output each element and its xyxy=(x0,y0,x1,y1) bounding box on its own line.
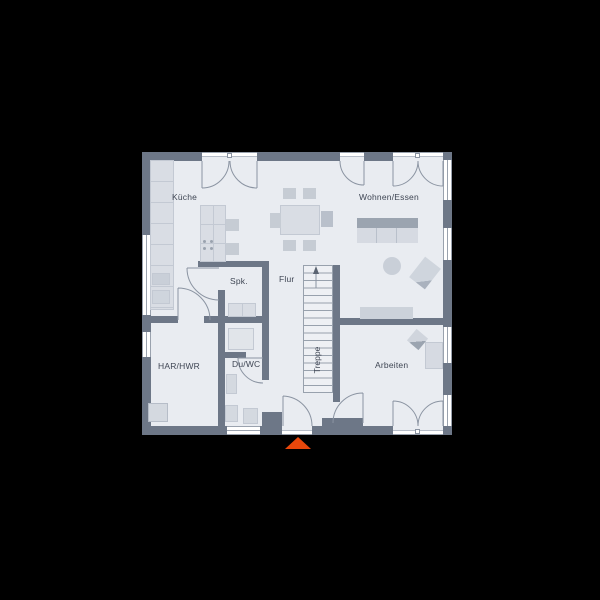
door-arc-living-single xyxy=(340,161,364,185)
room-label-har-hwr: HAR/HWR xyxy=(158,361,200,371)
room-label-treppe: Treppe xyxy=(312,340,324,380)
canvas: Küche Wohnen/Essen Spk. Flur Treppe HAR/… xyxy=(0,0,600,600)
stair-direction-arrow xyxy=(313,266,319,274)
door-arc-office-hall xyxy=(333,393,363,423)
door-arc-office-left xyxy=(393,401,418,426)
door-arc-har xyxy=(178,288,210,320)
door-arc-spk xyxy=(187,268,219,300)
floor-plan: Küche Wohnen/Essen Spk. Flur Treppe HAR/… xyxy=(142,152,452,435)
door-arc-terrace-left xyxy=(393,161,418,186)
room-label-arbeiten: Arbeiten xyxy=(375,360,408,370)
door-arc-kitchen-right xyxy=(230,161,257,188)
room-label-spk: Spk. xyxy=(230,276,248,286)
door-arc-office-right xyxy=(418,401,443,426)
room-label-wohnen-essen: Wohnen/Essen xyxy=(359,192,419,202)
room-label-du-wc: Du/WC xyxy=(232,359,260,369)
door-arc-kitchen-left xyxy=(202,161,229,188)
door-arc-terrace-right xyxy=(418,161,443,186)
entrance-marker xyxy=(285,437,311,449)
room-label-flur: Flur xyxy=(279,274,294,284)
room-label-kueche: Küche xyxy=(172,192,197,202)
door-arc-entrance xyxy=(283,396,312,426)
